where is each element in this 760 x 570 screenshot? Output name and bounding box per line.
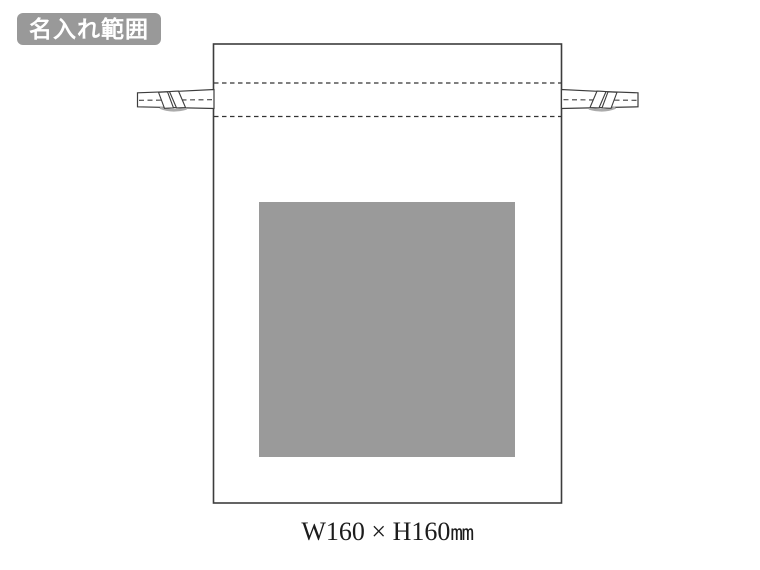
print-area [259,202,515,457]
drawstring-cord-left [138,90,215,111]
dimension-unit: mm [450,521,472,545]
drawstring-cord-right [562,90,639,111]
dimension-size-text: W160 × H160 [301,517,450,546]
print-area-dimensions: W160 × H160mm [301,517,472,548]
pouch-illustration [0,0,760,570]
name-print-area-diagram: 名入れ範囲 W160 × H160mm [0,0,760,570]
